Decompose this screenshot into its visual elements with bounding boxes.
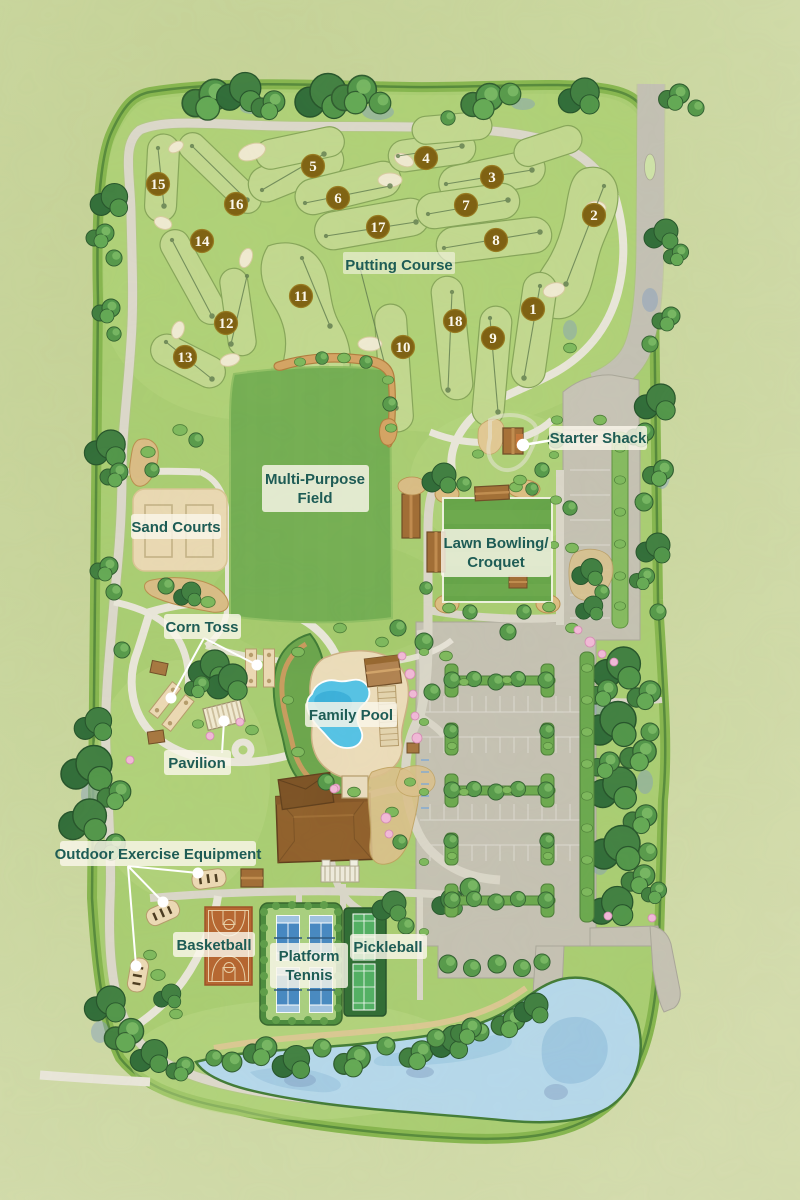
svg-text:Putting Course: Putting Course [345, 257, 453, 274]
svg-text:Corn Toss: Corn Toss [165, 619, 238, 636]
svg-text:Multi-Purpose: Multi-Purpose [265, 471, 365, 488]
svg-text:Outdoor Exercise Equipment: Outdoor Exercise Equipment [55, 846, 262, 863]
svg-text:Lawn Bowling/: Lawn Bowling/ [444, 535, 550, 552]
svg-text:Pickleball: Pickleball [353, 939, 422, 956]
svg-text:Croquet: Croquet [467, 554, 525, 571]
svg-text:Sand Courts: Sand Courts [131, 519, 220, 536]
svg-text:Pavilion: Pavilion [168, 755, 226, 772]
svg-text:Family Pool: Family Pool [309, 707, 393, 724]
svg-text:Platform: Platform [279, 948, 340, 965]
svg-text:Field: Field [297, 490, 332, 507]
svg-text:Tennis: Tennis [285, 967, 332, 984]
svg-text:Starter Shack: Starter Shack [550, 430, 647, 447]
svg-text:Basketball: Basketball [176, 937, 251, 954]
